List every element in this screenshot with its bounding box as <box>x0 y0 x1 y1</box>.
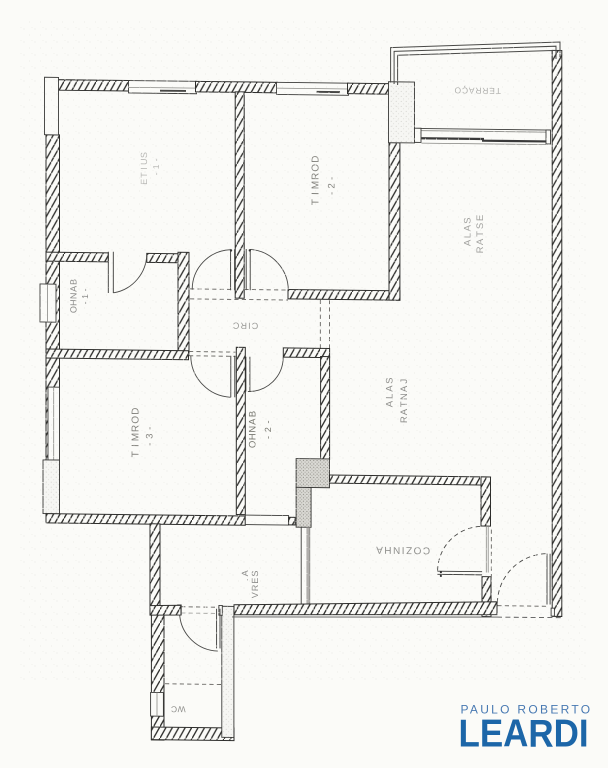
svg-text:LEARDI: LEARDI <box>459 712 589 755</box>
svg-text:WC: WC <box>170 704 185 714</box>
